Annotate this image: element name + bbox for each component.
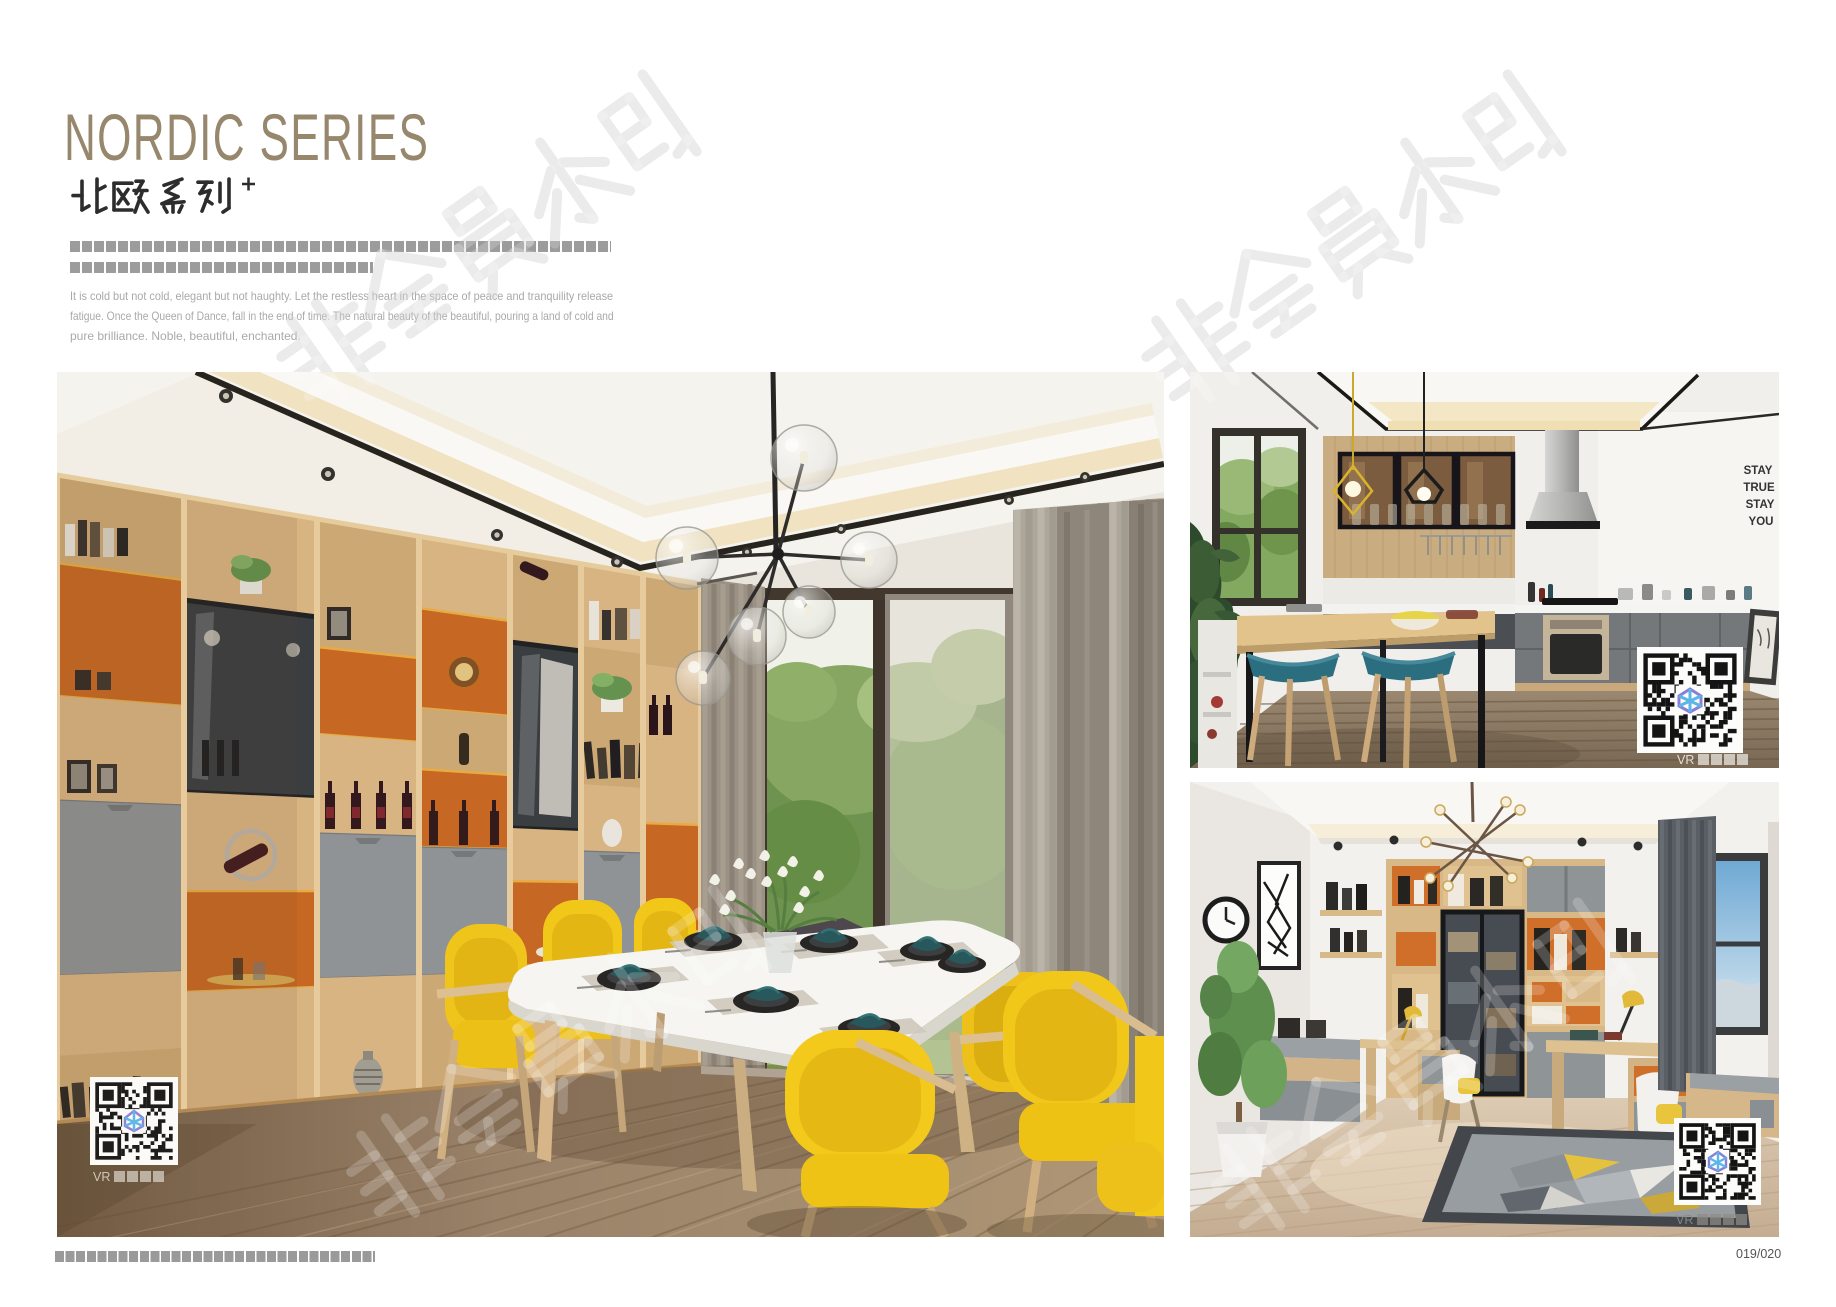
svg-text:STAY: STAY bbox=[1746, 499, 1775, 511]
svg-text:TRUE: TRUE bbox=[1743, 482, 1775, 494]
svg-text:STAY: STAY bbox=[1744, 465, 1773, 477]
svg-text:VR: VR bbox=[1677, 753, 1694, 767]
svg-text:YOU: YOU bbox=[1749, 516, 1774, 528]
svg-text:VR: VR bbox=[1676, 1213, 1693, 1227]
